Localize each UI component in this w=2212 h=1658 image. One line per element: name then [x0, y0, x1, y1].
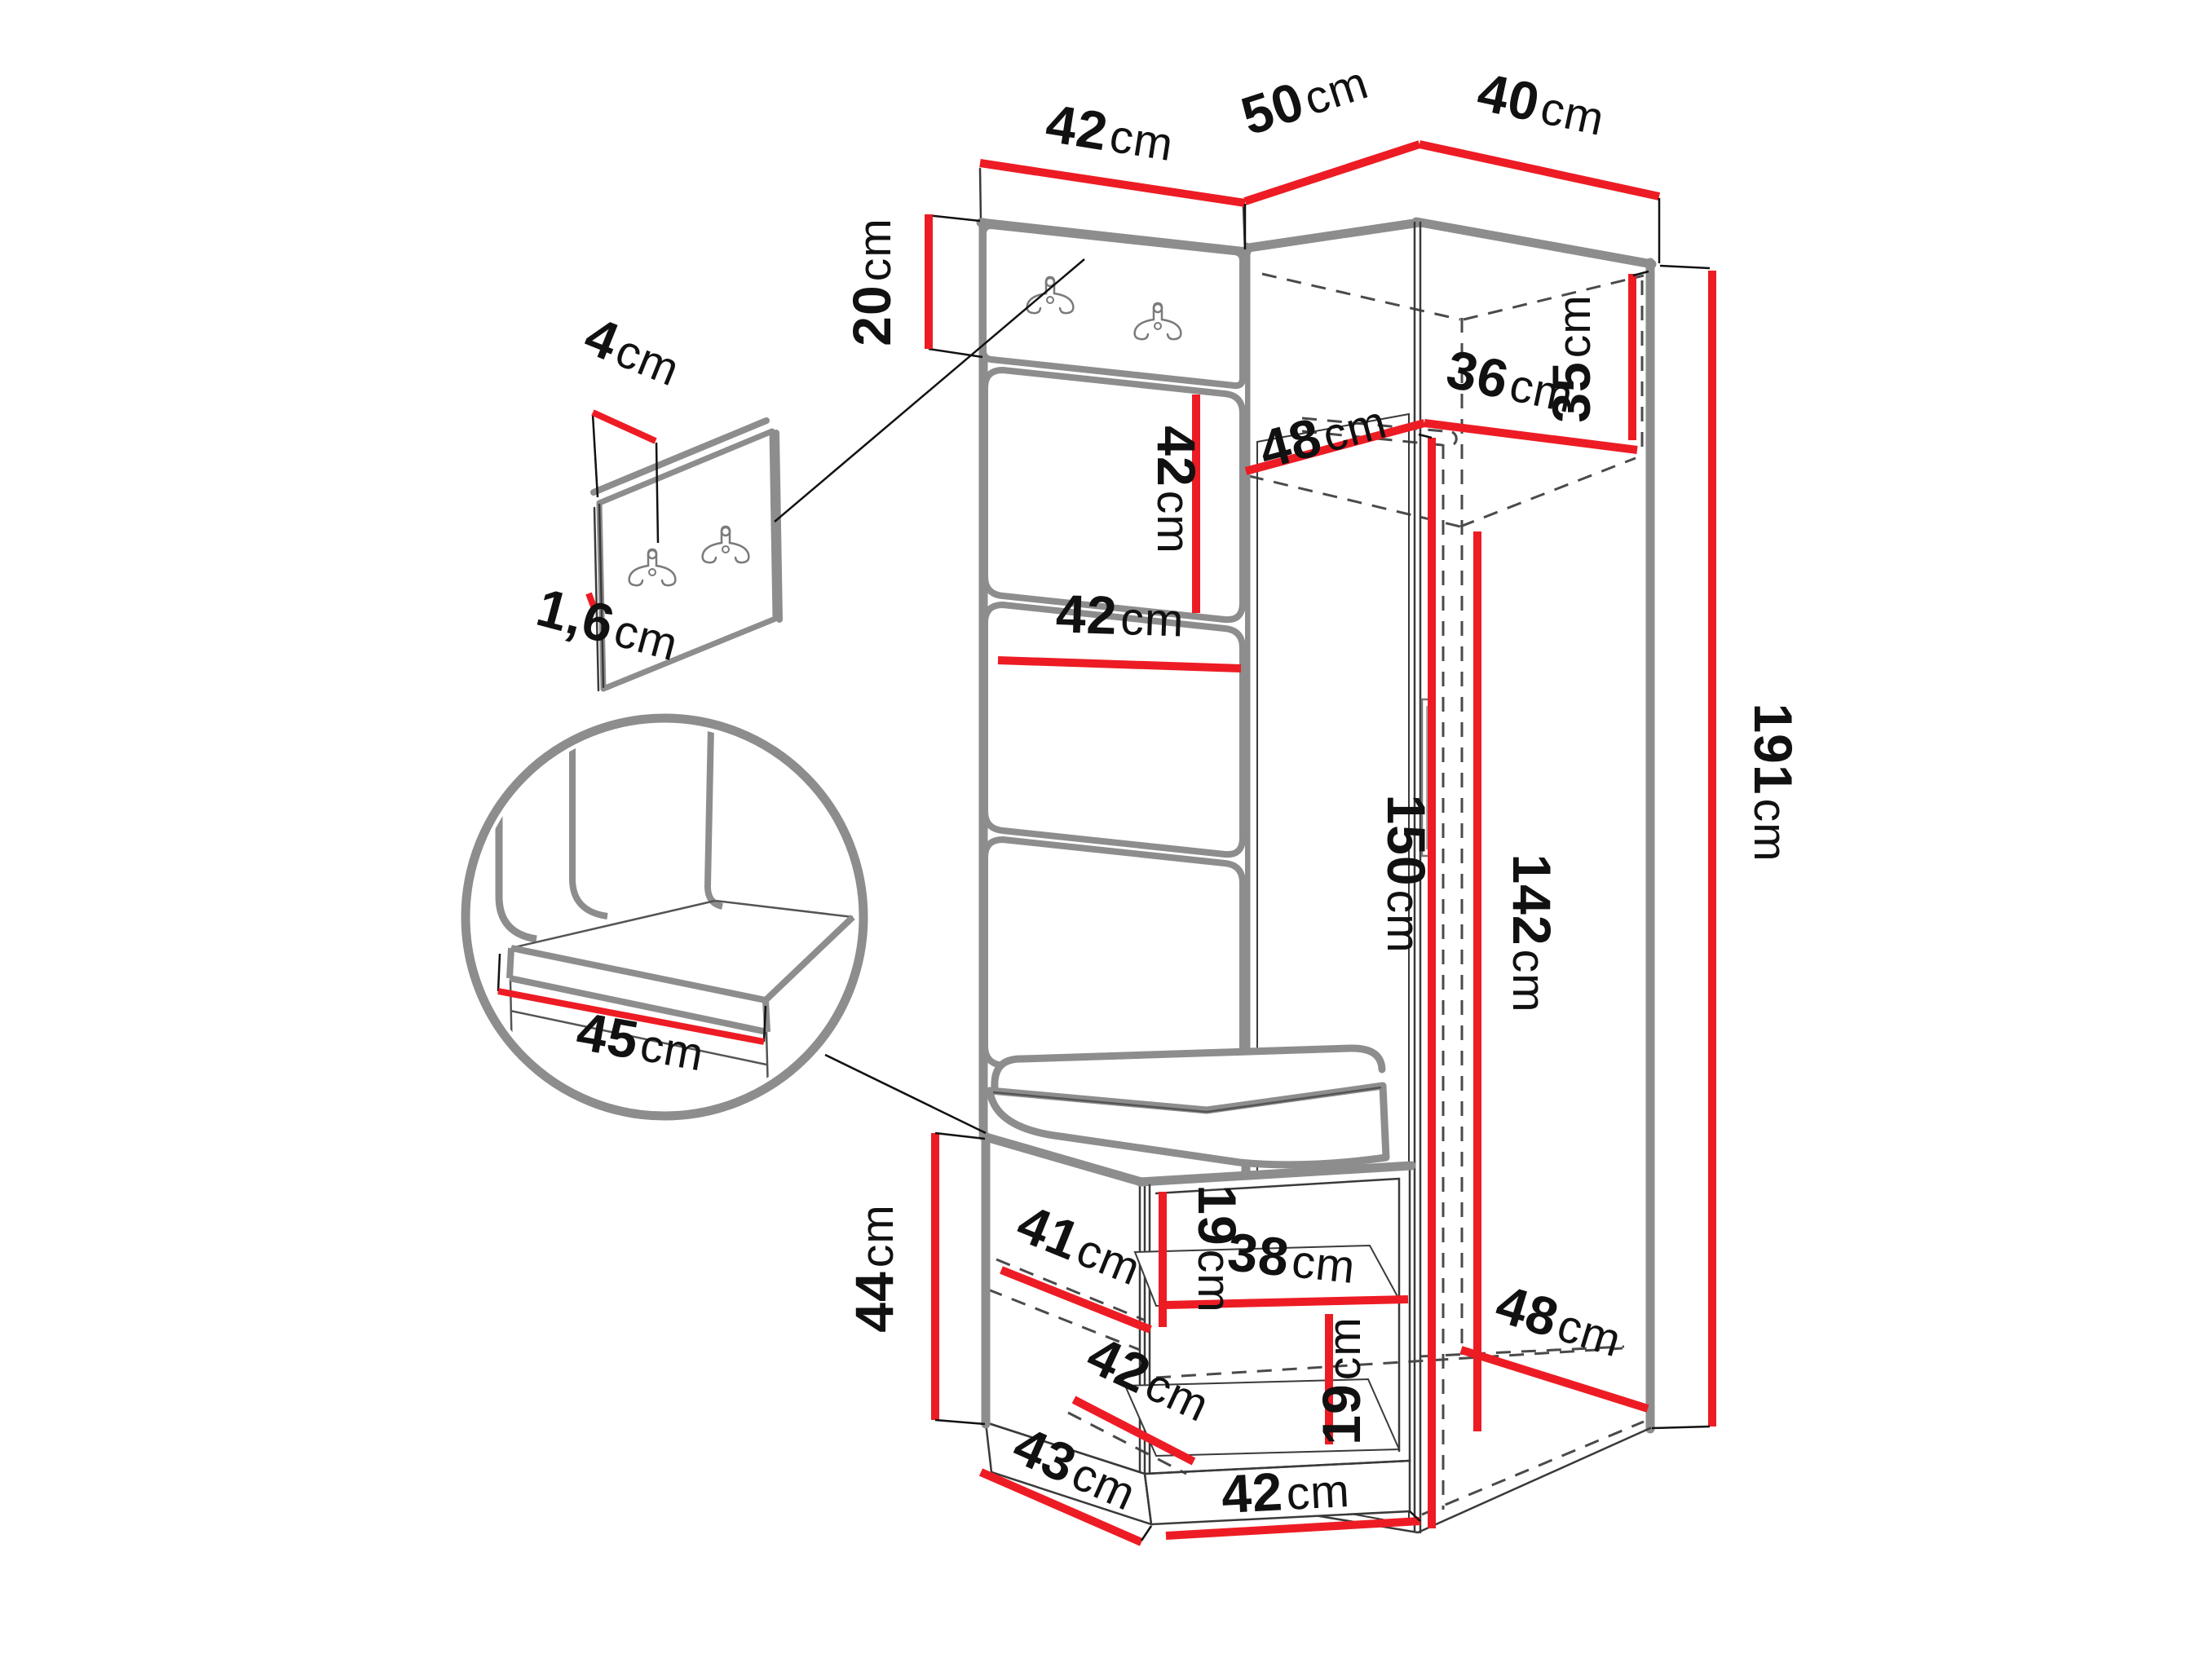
furniture-dimension-diagram: 42cm 50cm 40cm 20cm 4cm 1,6cm 42cm 42cm … — [0, 0, 2212, 1658]
dim-interior-height-label: 142cm — [1502, 853, 1562, 1012]
dim-bench-width-line — [1166, 1521, 1420, 1536]
upholstered-cushion-1 — [985, 370, 1243, 620]
dim-bench-height-label: 44cm — [844, 1204, 904, 1332]
seat-corner-detail — [466, 699, 986, 1133]
dim-bench-lower-height-label: 19cm — [1311, 1316, 1371, 1444]
dim-cushion-height-label: 42cm — [1146, 426, 1207, 553]
bench-seat-cushion — [990, 1048, 1386, 1165]
dim-detail-depth-line — [593, 412, 656, 441]
dim-total-height-label: 191cm — [1743, 703, 1804, 862]
technical-drawing-page: 42cm 50cm 40cm 20cm 4cm 1,6cm 42cm 42cm … — [0, 0, 2212, 1658]
hook-board — [983, 226, 1243, 386]
dim-top-panel-width-label: 42cm — [1042, 92, 1178, 172]
dim-door-height-label: 150cm — [1376, 794, 1437, 953]
dim-detail-depth-label: 4cm — [576, 305, 690, 397]
dim-top-right-width-label: 40cm — [1472, 61, 1610, 147]
dim-top-left-width-line — [1245, 144, 1419, 201]
circle-callout-line — [825, 1055, 986, 1133]
dim-top-right-width-line — [1419, 144, 1659, 196]
dim-top-clearance-label: 35cm — [1541, 294, 1601, 422]
dim-hook-panel-height-label: 20cm — [841, 218, 902, 346]
dim-top-left-width-label: 50cm — [1234, 50, 1375, 147]
